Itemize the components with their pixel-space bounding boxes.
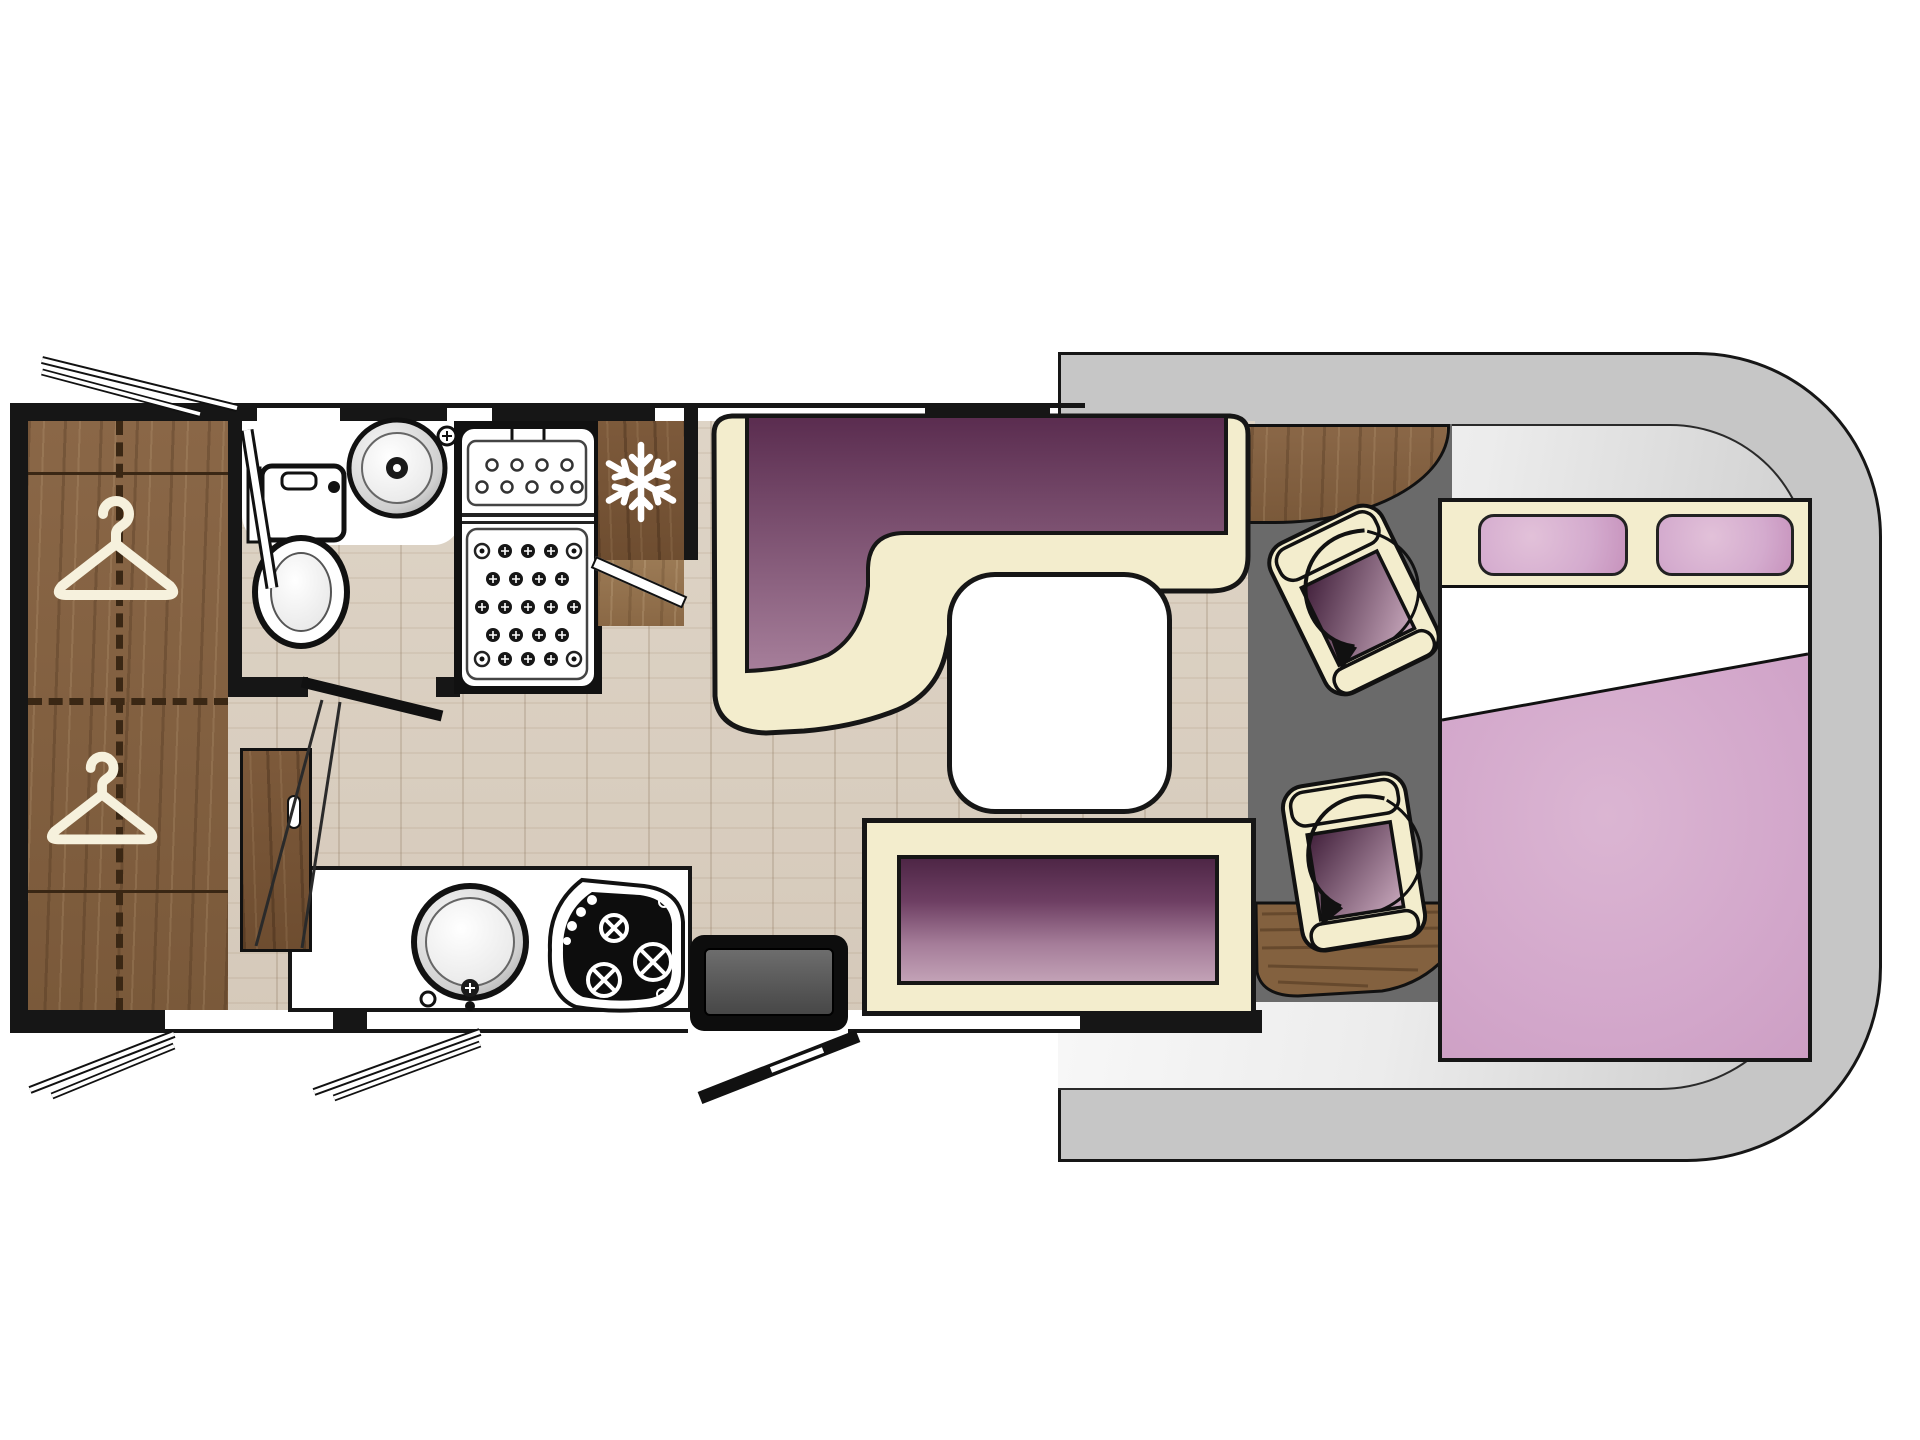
bed xyxy=(1438,498,1812,1062)
dining-table xyxy=(947,572,1172,814)
entry-door-swing xyxy=(700,1036,858,1098)
kitchen-hob xyxy=(550,880,683,1011)
snowflake-icon xyxy=(604,445,677,519)
hanger-icon-1 xyxy=(59,501,173,595)
hanger-icon-2 xyxy=(52,757,153,840)
washbasin xyxy=(349,420,456,516)
pillow-left xyxy=(1478,514,1628,576)
bed-duvet xyxy=(1442,588,1808,1058)
window-stay-top-left xyxy=(42,360,237,414)
floorplan-canvas xyxy=(0,0,1920,1440)
window-stay-bottom-left xyxy=(30,1034,174,1096)
pillow-right xyxy=(1656,514,1794,576)
bathroom-door-swing xyxy=(256,682,442,948)
cab-seat-driver xyxy=(1280,769,1434,953)
window-stay-kitchen xyxy=(314,1032,480,1098)
cab-seat-passenger xyxy=(1262,496,1452,702)
kitchen-sink xyxy=(414,886,526,1011)
